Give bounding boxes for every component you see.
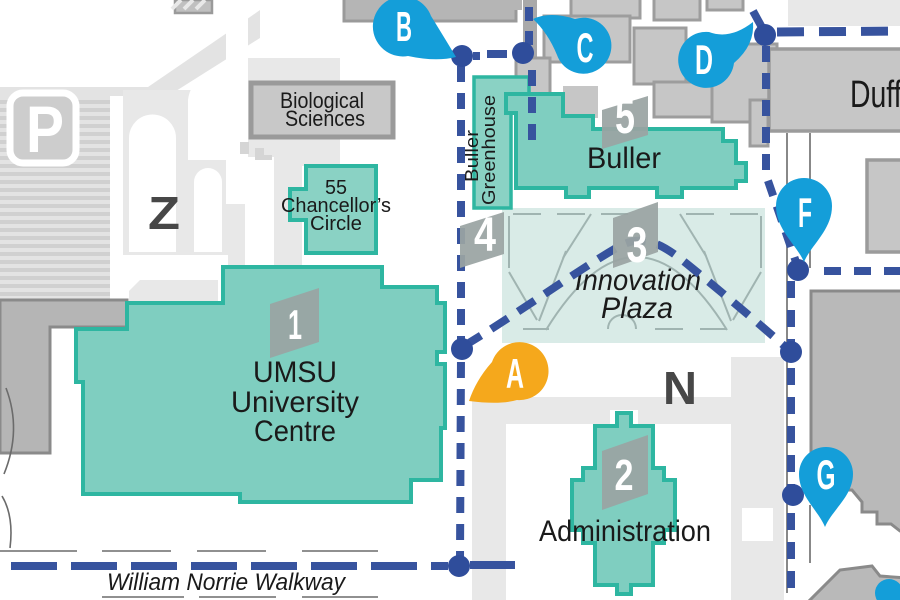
svg-text:UMSU: UMSU [253, 356, 337, 389]
svg-text:A: A [506, 350, 524, 397]
svg-text:D: D [695, 36, 713, 83]
svg-text:F: F [798, 189, 812, 236]
svg-text:C: C [577, 24, 594, 71]
svg-text:Buller: Buller [587, 142, 661, 175]
svg-text:Duff Roblin: Duff Roblin [850, 74, 900, 116]
svg-text:Plaza: Plaza [601, 292, 673, 325]
svg-text:4: 4 [474, 209, 496, 262]
svg-text:Greenhouse: Greenhouse [479, 95, 499, 205]
svg-text:William Norrie Walkway: William Norrie Walkway [107, 569, 347, 596]
svg-text:2: 2 [615, 451, 634, 500]
svg-text:5: 5 [615, 88, 635, 144]
svg-text:N: N [663, 362, 697, 414]
svg-text:1: 1 [288, 301, 302, 348]
svg-text:G: G [817, 451, 836, 498]
svg-text:3: 3 [627, 217, 648, 273]
svg-text:Circle: Circle [310, 213, 362, 235]
svg-text:Z: Z [148, 187, 180, 239]
svg-text:Sciences: Sciences [285, 106, 365, 131]
svg-text:P: P [26, 92, 64, 166]
svg-text:Centre: Centre [254, 415, 336, 448]
svg-text:Administration: Administration [539, 515, 711, 548]
svg-text:B: B [396, 3, 412, 50]
